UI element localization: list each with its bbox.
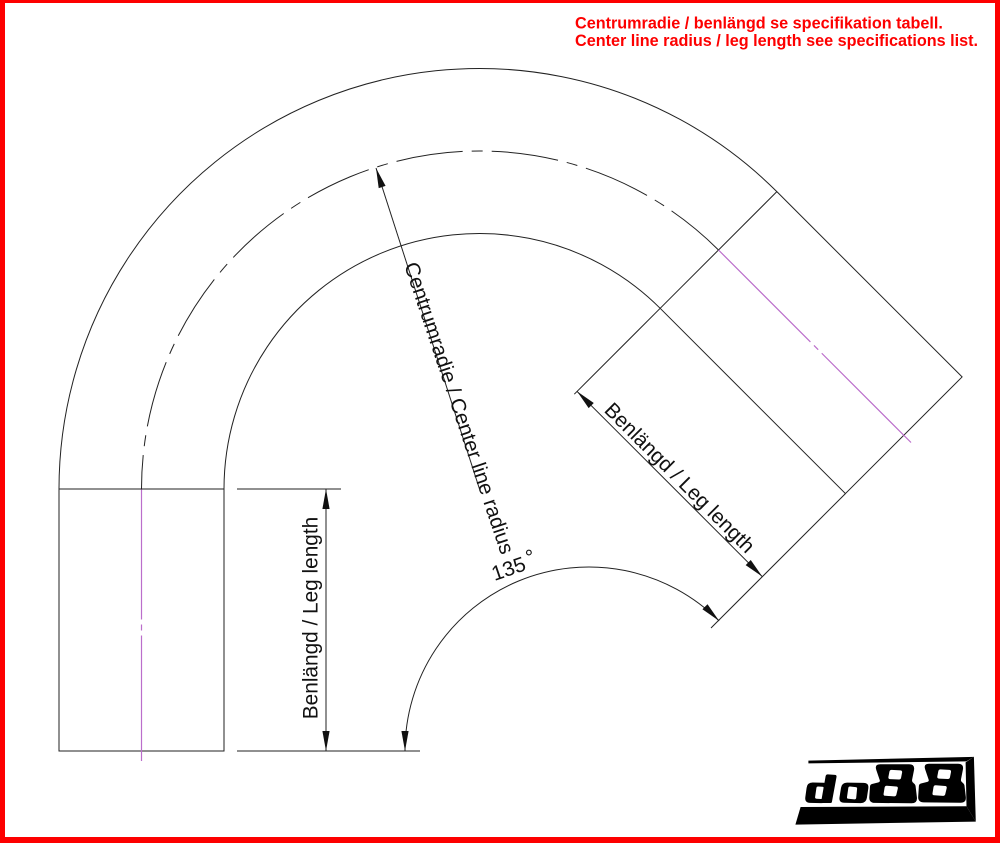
svg-text:Center line radius / leg lengt: Center line radius / leg length see spec…: [575, 32, 978, 50]
svg-text:Centrumradie / benlängd se spe: Centrumradie / benlängd se specifikation…: [575, 15, 943, 33]
svg-text:Benlängd / Leg length: Benlängd / Leg length: [300, 517, 323, 719]
